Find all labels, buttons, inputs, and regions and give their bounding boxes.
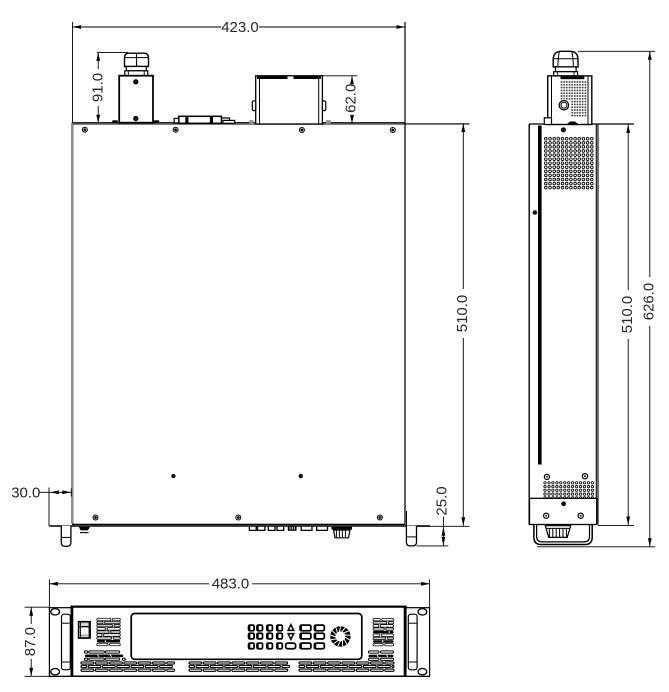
svg-text:483.0: 483.0 — [212, 576, 250, 593]
svg-text:91.0: 91.0 — [89, 73, 106, 102]
svg-text:62.0: 62.0 — [343, 84, 360, 113]
svg-text:25.0: 25.0 — [434, 486, 451, 515]
svg-text:423.0: 423.0 — [221, 19, 259, 36]
svg-text:510.0: 510.0 — [619, 296, 636, 334]
svg-text:626.0: 626.0 — [640, 283, 657, 321]
svg-text:87.0: 87.0 — [22, 627, 39, 656]
svg-text:30.0: 30.0 — [11, 485, 40, 502]
svg-text:510.0: 510.0 — [454, 295, 471, 333]
